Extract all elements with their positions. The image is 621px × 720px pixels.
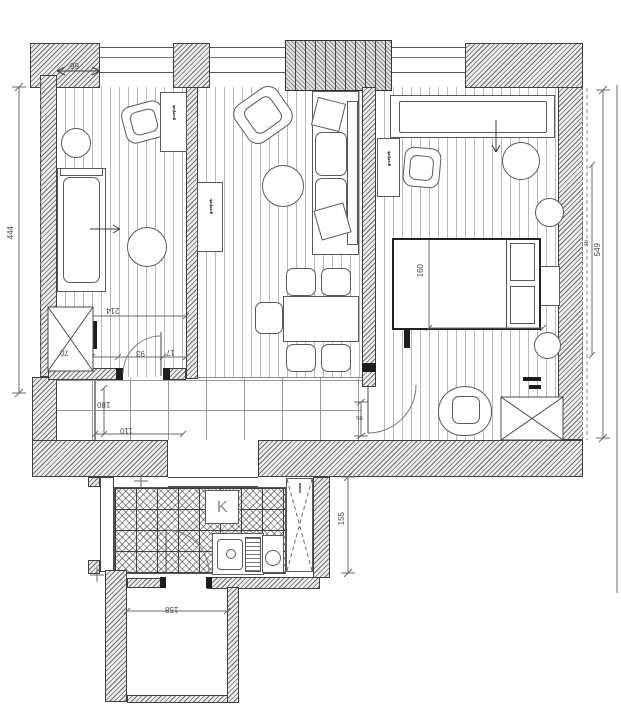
dim-text-17: 17 [166, 348, 175, 356]
dim-line-left-444 [12, 83, 26, 397]
dim-text-95: 95 [356, 414, 363, 420]
dim-line-right-549 [596, 86, 610, 442]
dim-line-bed-160 [426, 240, 546, 331]
dim-text-180: 180 [97, 400, 110, 408]
dim-text-99: 99 [70, 63, 79, 71]
dim-text-155: 155 [338, 512, 346, 525]
dim-text-214: 214 [106, 306, 119, 314]
dim-text-36: 36 [584, 240, 590, 247]
reference-crosses [90, 474, 148, 582]
dim-text-160: 160 [417, 264, 425, 277]
dim-text-70: 70 [60, 348, 69, 356]
annotation-overlay [0, 0, 621, 720]
dim-line-right-inner-36 [589, 162, 595, 358]
room1-wardrobe-crossed [48, 307, 93, 371]
dim-text-93: 93 [136, 349, 145, 357]
dim-line-hall-180 [101, 385, 107, 437]
floor-plan: grzejnik grzejnik grzejnik [0, 0, 621, 720]
arrow-bedroom [492, 120, 500, 152]
dim-text-549: 549 [594, 243, 602, 256]
bedroom-wardrobe-crossed [501, 397, 563, 440]
arrow-room1 [90, 225, 120, 233]
dim-text-158: 158 [165, 605, 178, 613]
dim-text-110: 110 [120, 426, 133, 434]
door-bedroom [368, 385, 416, 433]
dim-text-444: 444 [7, 226, 15, 239]
kitchen-cabinet-dashed-cross [287, 479, 312, 571]
door-bottom-room [166, 530, 209, 573]
